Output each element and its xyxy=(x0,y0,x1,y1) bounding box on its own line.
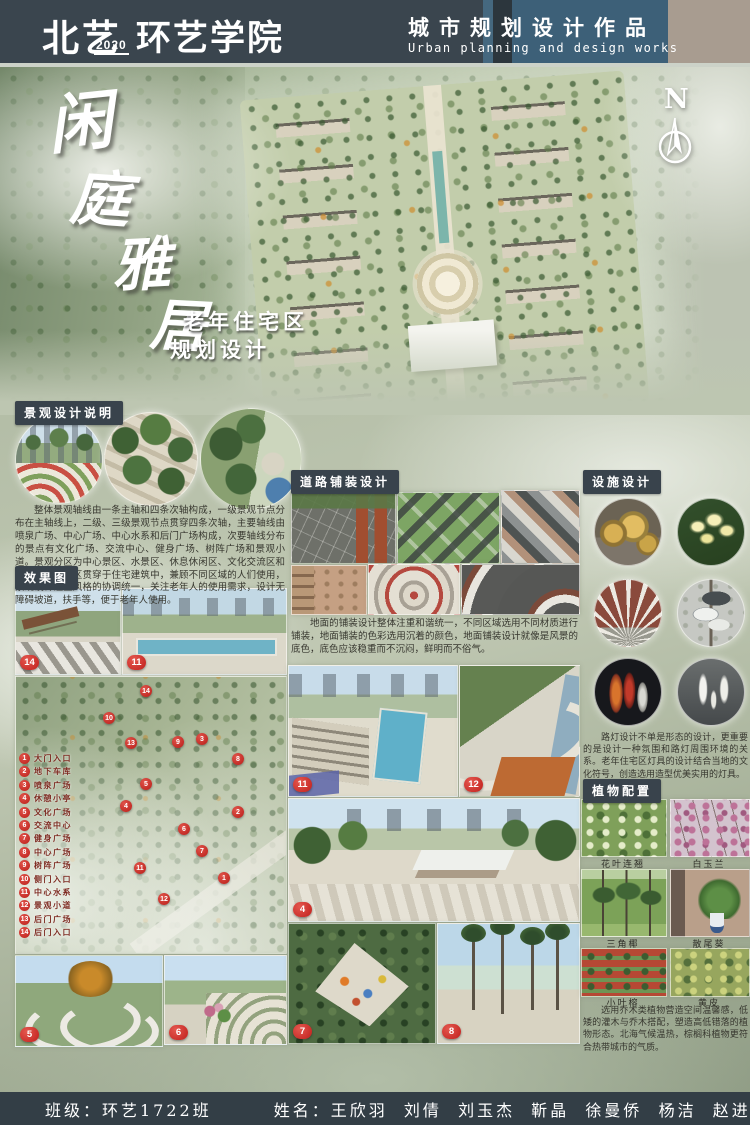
legend-item: 9树阵广场 xyxy=(19,860,72,871)
plant-photo-areca-palm xyxy=(670,869,750,937)
facility-description: 路灯设计不单是形态的设计，更重要的是设计一种氛围和路灯周围环境的关系。老年住宅区… xyxy=(583,731,748,780)
subtitle-line1: 老年住宅区 xyxy=(183,306,308,336)
legend-num: 10 xyxy=(19,874,30,885)
legend-label: 侧门入口 xyxy=(34,874,72,885)
legend-num: 13 xyxy=(19,914,30,925)
plan-pin: 6 xyxy=(178,823,190,835)
legend-label: 大门入口 xyxy=(34,753,72,764)
canal-water xyxy=(136,638,277,656)
names-label: 姓名：王欣羽 刘倩 刘玉杰 靳晶 徐曼侨 杨洁 赵进歧 xyxy=(274,1097,750,1121)
brand-year: 2020 xyxy=(94,38,129,55)
plant-caption: 花叶连翘 xyxy=(581,857,665,870)
effect-photo-curved-trail: 12 xyxy=(459,665,580,797)
legend-item: 14后门入口 xyxy=(19,927,72,938)
flower-pot xyxy=(710,913,724,934)
plan-pin: 9 xyxy=(172,736,184,748)
legend-num: 2 xyxy=(19,766,30,777)
plan-pin: 7 xyxy=(196,845,208,857)
legend-label: 后门入口 xyxy=(34,927,72,938)
flower-bed xyxy=(199,1002,235,1025)
landscape-description: 整体景观轴线由一条主轴和四条次轴构成，一级景观节点分布在主轴线上，二级、三级景观… xyxy=(15,505,285,608)
palm-tree xyxy=(472,938,475,1009)
plant-photo-wampee xyxy=(670,948,750,997)
paving-photo-medallion xyxy=(368,564,460,615)
photo-tag: 8 xyxy=(442,1024,461,1039)
legend-item: 10侧门入口 xyxy=(19,874,72,885)
effect-photo-pavilion-plaza: 4 xyxy=(288,798,580,922)
plant-caption: 白玉兰 xyxy=(670,857,748,870)
plan-pin: 2 xyxy=(232,806,244,818)
landscape-photo-path-topview xyxy=(104,412,198,506)
landscape-photo-steps xyxy=(15,416,103,504)
title-char-2: 庭 xyxy=(68,168,132,232)
photo-tag: 7 xyxy=(293,1024,312,1039)
legend-num: 9 xyxy=(19,860,30,871)
poster: 北艺 2020 环艺学院 城市规划设计作品 Urban planning and… xyxy=(0,0,750,1125)
legend-label: 树阵广场 xyxy=(34,860,72,871)
legend-item: 12景观小道 xyxy=(19,900,72,911)
legend-item: 5文化广场 xyxy=(19,807,72,818)
photo-tag: 12 xyxy=(464,777,483,792)
effect-photo-playground-aerial: 7 xyxy=(288,923,436,1044)
effect-photo-terraced-garden: 6 xyxy=(164,955,287,1045)
stone-steps xyxy=(292,566,314,614)
north-arrow: N xyxy=(648,84,704,180)
plan-pin: 10 xyxy=(103,712,115,724)
striped-paving xyxy=(289,884,579,921)
facility-photo-leaf-lights xyxy=(677,658,745,726)
header-bar: 北艺 2020 环艺学院 城市规划设计作品 Urban planning and… xyxy=(0,0,750,63)
legend-label: 文化广场 xyxy=(34,807,72,818)
plant-photo-banyan xyxy=(581,948,667,997)
legend-item: 8中心广场 xyxy=(19,847,72,858)
title-char-3: 雅 xyxy=(111,235,172,296)
header-divider xyxy=(0,63,750,67)
palm-tree xyxy=(531,941,534,1010)
facility-photo-gold-planters xyxy=(594,498,662,566)
paving-photo-mixed-stone xyxy=(501,490,580,564)
legend-num: 8 xyxy=(19,847,30,858)
site-plan-legend: 1大门入口 2地下车库 3喷泉广场 4休憩小亭 5文化广场 6交流中心 7健身广… xyxy=(19,753,72,938)
photo-tag: 14 xyxy=(20,655,39,670)
landscape-photo-street xyxy=(200,408,302,510)
legend-num: 14 xyxy=(19,927,30,938)
north-label: N xyxy=(664,84,689,115)
central-circular-plaza xyxy=(414,251,481,318)
plan-pin: 14 xyxy=(140,685,152,697)
plant-caption: 散尾葵 xyxy=(670,937,748,950)
legend-item: 11中心水系 xyxy=(19,887,72,898)
legend-num: 11 xyxy=(19,887,30,898)
section-label-facility: 设施设计 xyxy=(583,470,661,494)
legend-label: 后门广场 xyxy=(34,914,72,925)
effect-photo-palm-plaza: 8 xyxy=(437,923,580,1044)
plants-description: 选用乔木类植物营造空间温馨感，低矮的灌木与乔木搭配，塑造高低错落的植物形态。北海… xyxy=(583,1004,748,1053)
legend-label: 地下车库 xyxy=(34,766,72,777)
effect-photo-water-terraces: 11 xyxy=(288,665,458,797)
section-label-effects: 效果图 xyxy=(15,566,78,590)
legend-item: 7健身广场 xyxy=(19,833,72,844)
class-label: 班级：环艺1722班 xyxy=(45,1097,212,1121)
legend-num: 4 xyxy=(19,793,30,804)
photo-tag: 6 xyxy=(169,1025,188,1040)
legend-item: 4休憩小亭 xyxy=(19,793,72,804)
legend-label: 景观小道 xyxy=(34,900,72,911)
plan-pin: 1 xyxy=(218,872,230,884)
section-label-plants: 植物配置 xyxy=(583,779,661,803)
plant-caption: 三角椰 xyxy=(581,937,665,950)
pergola xyxy=(22,606,80,630)
landscape-photo-street-trees xyxy=(201,409,301,509)
poster-category-title: 城市规划设计作品 xyxy=(408,12,656,42)
facility-photo-leaf-signs xyxy=(677,579,745,647)
palm-crowns xyxy=(582,870,666,936)
photo-tag: 5 xyxy=(20,1027,39,1042)
palm-tree xyxy=(556,936,559,1010)
legend-item: 13后门广场 xyxy=(19,914,72,925)
plan-pin: 5 xyxy=(140,778,152,790)
facility-photo-palm-sculpture xyxy=(594,579,662,647)
legend-item: 3喷泉广场 xyxy=(19,780,72,791)
legend-label: 喷泉广场 xyxy=(34,780,72,791)
orange-gravel xyxy=(490,757,575,796)
compass-icon xyxy=(652,114,698,172)
plan-pin: 12 xyxy=(158,893,170,905)
photo-tag: 4 xyxy=(293,902,312,917)
legend-num: 1 xyxy=(19,753,30,764)
legend-label: 健身广场 xyxy=(34,833,72,844)
facility-photo-flame-sculpture xyxy=(594,658,662,726)
legend-item: 2地下车库 xyxy=(19,766,72,777)
legend-label: 中心水系 xyxy=(34,887,72,898)
plan-pin: 11 xyxy=(134,862,146,874)
plant-photo-magnolia xyxy=(670,799,750,857)
legend-num: 3 xyxy=(19,780,30,791)
paving-description: 地面的铺装设计整体注重和谐统一，不同区域选用不同材质进行铺装，地面铺装的色彩选用… xyxy=(291,618,578,657)
effect-photo-circular-wall-garden: 5 xyxy=(15,955,163,1047)
legend-num: 5 xyxy=(19,807,30,818)
legend-item: 6交流中心 xyxy=(19,820,72,831)
plan-pin: 3 xyxy=(196,733,208,745)
paving-photo-planter-walk xyxy=(291,492,396,564)
legend-label: 中心广场 xyxy=(34,847,72,858)
footer-bar: 班级：环艺1722班 姓名：王欣羽 刘倩 刘玉杰 靳晶 徐曼侨 杨洁 赵进歧 xyxy=(0,1092,750,1125)
paving-photo-lawn-maze xyxy=(397,492,500,564)
section-label-paving: 道路铺装设计 xyxy=(291,470,399,494)
palm-tree xyxy=(501,931,504,1014)
title-char-1: 闲 xyxy=(45,89,115,159)
plan-pin: 4 xyxy=(120,800,132,812)
poster-category-subtitle-en: Urban planning and design works xyxy=(408,41,678,55)
plant-photo-forsythia xyxy=(581,799,667,857)
legend-label: 交流中心 xyxy=(34,820,72,831)
legend-label: 休憩小亭 xyxy=(34,793,72,804)
legend-num: 6 xyxy=(19,820,30,831)
legend-item: 1大门入口 xyxy=(19,753,72,764)
plan-pin: 13 xyxy=(125,737,137,749)
photo-tag: 11 xyxy=(293,777,312,792)
header-stripe-beige xyxy=(668,0,750,63)
legend-num: 12 xyxy=(19,900,30,911)
canal-water xyxy=(373,708,428,784)
photo-tag: 11 xyxy=(127,655,146,670)
plan-pin: 8 xyxy=(232,753,244,765)
plant-photo-triangle-palm xyxy=(581,869,667,937)
city-skyline xyxy=(289,674,457,697)
paving-photo-stamped xyxy=(291,565,367,615)
white-canopy xyxy=(412,850,513,870)
autumn-tree xyxy=(66,961,116,997)
legend-num: 7 xyxy=(19,833,30,844)
section-label-landscape: 景观设计说明 xyxy=(15,401,123,425)
facility-photo-flower-lamps xyxy=(677,498,745,566)
subtitle-line2: 规划设计 xyxy=(170,334,270,364)
paving-photo-curved-bands xyxy=(461,564,580,615)
college-name: 环艺学院 xyxy=(136,10,284,61)
play-equipment-dots xyxy=(333,969,391,1009)
